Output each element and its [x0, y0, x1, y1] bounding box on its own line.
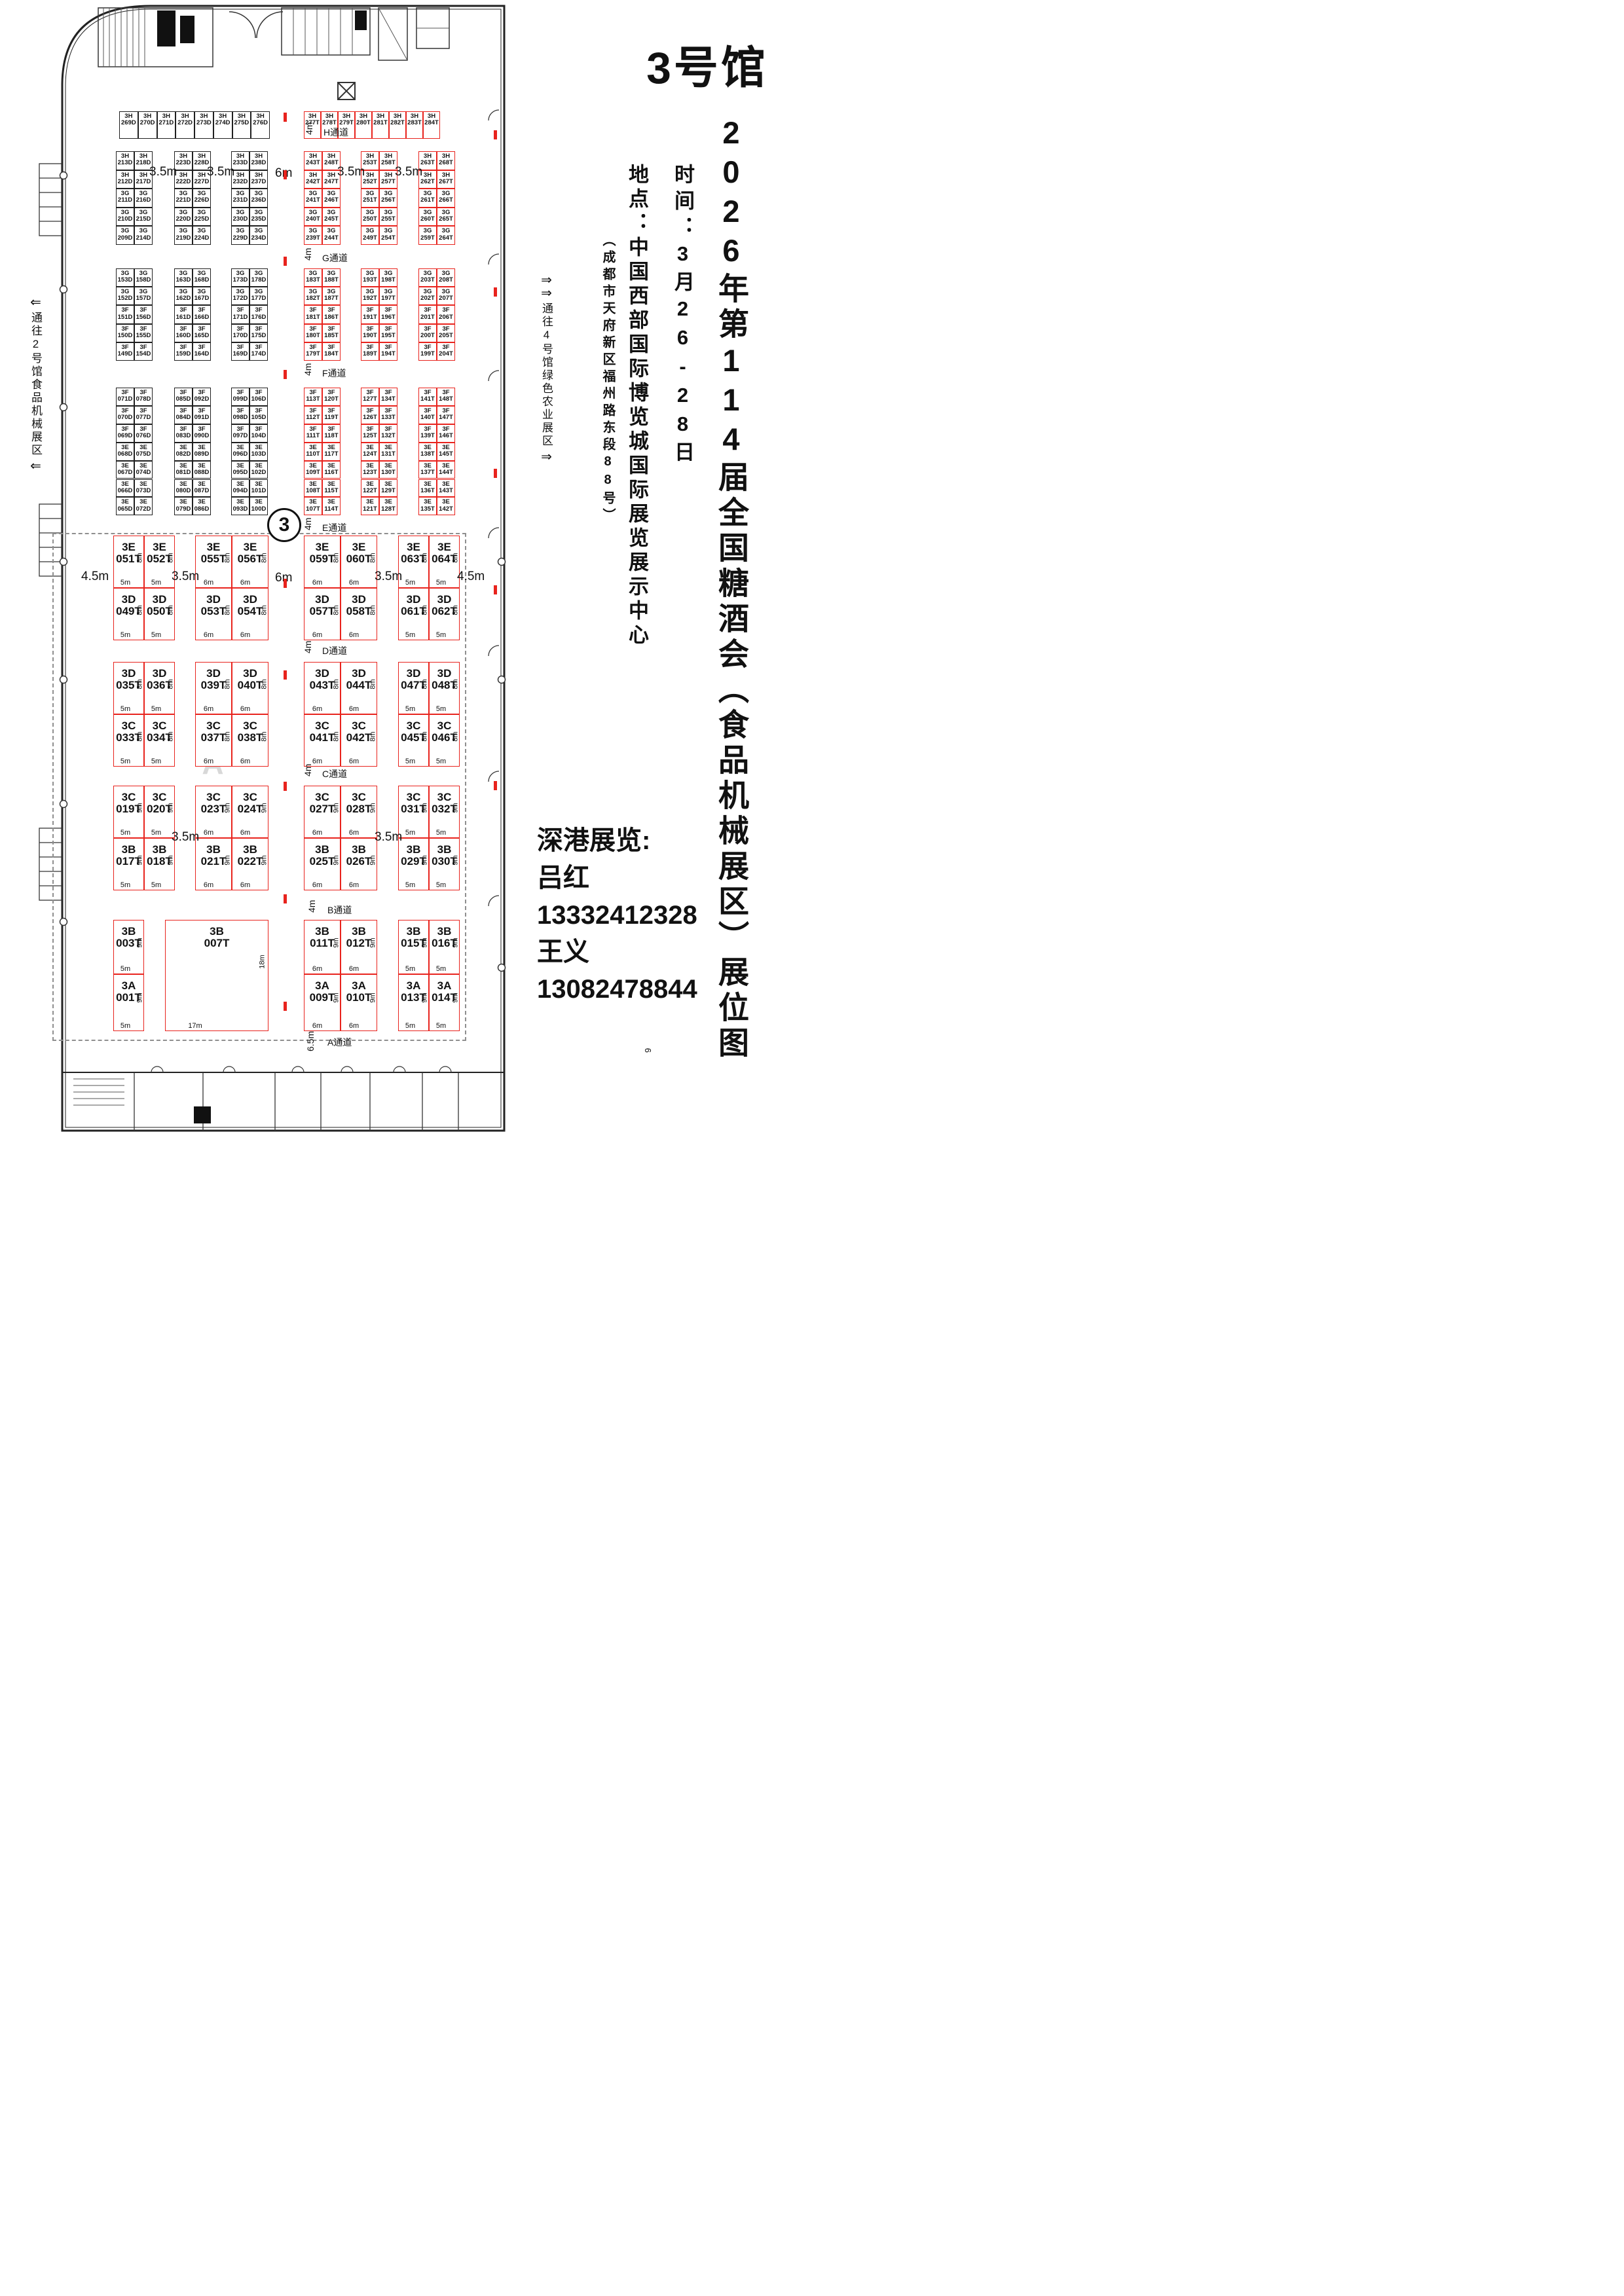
- booth-3F-184T: 3F184T: [322, 342, 341, 361]
- booth-width-label: 5m: [405, 1022, 415, 1030]
- dim-label: 4.5m: [457, 570, 485, 584]
- booth-3G-226D: 3G226D: [193, 189, 211, 208]
- dim-label: 3.5m: [375, 830, 402, 845]
- booth-3G-240T: 3G240T: [304, 208, 322, 227]
- booth-3F-139T: 3F139T: [418, 424, 437, 443]
- booth-3E-135T: 3E135T: [418, 497, 437, 515]
- booth-depth-label: 9m: [166, 803, 174, 812]
- booth-width-label: 5m: [436, 579, 446, 587]
- booth-3E-055T: 3E055T6m8m: [195, 536, 232, 588]
- booth-3E-067D: 3E067D: [116, 461, 134, 479]
- booth-width-label: 5m: [151, 631, 161, 639]
- booth-3E-128T: 3E128T: [379, 497, 397, 515]
- booth-3C-045T: 3C045T5m8m: [398, 714, 429, 767]
- booth-depth-label: 9m: [369, 803, 377, 812]
- booth-3G-241T: 3G241T: [304, 189, 322, 208]
- booth-width-label: 5m: [151, 757, 161, 765]
- booth-width-label: 6m: [204, 579, 213, 587]
- booth-depth-label: 8m: [332, 731, 340, 741]
- booth-depth-label: 8m: [420, 731, 428, 741]
- booth-3F-141T: 3F141T: [418, 388, 437, 406]
- booth-3F-190T: 3F190T: [361, 324, 379, 342]
- booth-3D-036T: 3D036T5m8m: [144, 662, 175, 714]
- booth-3G-265T: 3G265T: [437, 208, 455, 227]
- booth-width-label: 5m: [405, 829, 415, 837]
- contact-phone: 13332412328: [537, 897, 697, 934]
- booth-3B-025T: 3B025T6m9m: [304, 838, 341, 890]
- booth-width-label: 5m: [120, 829, 130, 837]
- booth-3H-283T: 3H283T: [406, 111, 423, 139]
- booth-3F-148T: 3F148T: [437, 388, 455, 406]
- booth-depth-label: 8m: [332, 679, 340, 689]
- aisle-label: B通道: [327, 903, 352, 917]
- booth-width-label: 5m: [120, 965, 130, 973]
- booth-3D-057T: 3D057T6m8m: [304, 588, 341, 640]
- booth-3H-271D: 3H271D: [157, 111, 176, 139]
- booth-3F-189T: 3F189T: [361, 342, 379, 361]
- booth-3F-154D: 3F154D: [134, 342, 153, 361]
- booth-depth-label: 8m: [369, 605, 377, 615]
- booth-3F-161D: 3F161D: [174, 305, 193, 323]
- booth-3F-201T: 3F201T: [418, 305, 437, 323]
- note-to-hall4: ⇒ ⇒ 通往4号馆绿色农业展区 ⇒: [538, 274, 555, 464]
- booth-3G-162D: 3G162D: [174, 287, 193, 305]
- booth-3F-151D: 3F151D: [116, 305, 134, 323]
- dim-label: 4m: [303, 518, 313, 530]
- booth-3E-093D: 3E093D: [231, 497, 249, 515]
- booth-3G-220D: 3G220D: [174, 208, 193, 227]
- booth-3F-171D: 3F171D: [231, 305, 249, 323]
- booth-3C-042T: 3C042T6m8m: [341, 714, 377, 767]
- booth-3B-021T: 3B021T6m9m: [195, 838, 232, 890]
- dim-label: 4m: [303, 248, 313, 261]
- booth-width-label: 5m: [405, 965, 415, 973]
- aisle-label: A通道: [327, 1036, 352, 1049]
- booth-3B-030T: 3B030T5m9m: [429, 838, 460, 890]
- booth-depth-label: 9m: [369, 938, 377, 947]
- booth-3G-211D: 3G211D: [116, 189, 134, 208]
- booth-3B-016T: 3B016T5m9m: [429, 920, 460, 974]
- booth-3F-205T: 3F205T: [437, 324, 455, 342]
- booth-depth-label: 8m: [223, 731, 231, 741]
- dim-label: 4m: [303, 363, 313, 376]
- booth-3D-035T: 3D035T5m8m: [113, 662, 144, 714]
- booth-3G-168D: 3G168D: [193, 268, 211, 287]
- corner-grid-label: 9: [643, 1048, 653, 1053]
- booth-width-label: 6m: [349, 705, 359, 713]
- booth-3D-053T: 3D053T6m8m: [195, 588, 232, 640]
- booth-width-label: 5m: [120, 757, 130, 765]
- booth-depth-label: 8m: [223, 679, 231, 689]
- booth-3B-017T: 3B017T5m9m: [113, 838, 144, 890]
- booth-depth-label: 8m: [420, 605, 428, 615]
- booth-3F-132T: 3F132T: [379, 424, 397, 443]
- booth-width-label: 5m: [151, 829, 161, 837]
- booth-3B-022T: 3B022T6m9m: [232, 838, 268, 890]
- booth-3G-250T: 3G250T: [361, 208, 379, 227]
- booth-3E-138T: 3E138T: [418, 443, 437, 461]
- booth-width-label: 6m: [240, 579, 250, 587]
- booth-3E-081D: 3E081D: [174, 461, 193, 479]
- booth-width-label: 5m: [151, 705, 161, 713]
- aisle-dash-mark: [284, 370, 287, 379]
- booth-depth-label: 8m: [451, 731, 459, 741]
- booth-depth-label: 8m: [332, 553, 340, 562]
- booth-3E-142T: 3E142T: [437, 497, 455, 515]
- booth-width-label: 6m: [312, 757, 322, 765]
- booth-3F-195T: 3F195T: [379, 324, 397, 342]
- booth-depth-label: 8m: [166, 679, 174, 689]
- booth-3F-174D: 3F174D: [249, 342, 268, 361]
- booth-3H-267T: 3H267T: [437, 170, 455, 189]
- booth-3D-044T: 3D044T6m8m: [341, 662, 377, 714]
- booth-width-label: 5m: [120, 579, 130, 587]
- booth-3G-178D: 3G178D: [249, 268, 268, 287]
- booth-3G-261T: 3G261T: [418, 189, 437, 208]
- booth-3F-133T: 3F133T: [379, 406, 397, 424]
- booth-3E-056T: 3E056T6m8m: [232, 536, 268, 588]
- booth-width-label: 17m: [188, 1022, 202, 1030]
- left-arrow-icon: ⇐: [30, 296, 41, 309]
- booth-3G-153D: 3G153D: [116, 268, 134, 287]
- booth-width-label: 6m: [312, 965, 322, 973]
- booth-3G-239T: 3G239T: [304, 226, 322, 245]
- booth-width-label: 6m: [240, 757, 250, 765]
- booth-3B-029T: 3B029T5m9m: [398, 838, 429, 890]
- booth-depth-label: 8m: [136, 679, 143, 689]
- booth-width-label: 6m: [349, 965, 359, 973]
- booth-width-label: 5m: [405, 881, 415, 889]
- booth-3H-281T: 3H281T: [372, 111, 389, 139]
- booth-3D-054T: 3D054T6m8m: [232, 588, 268, 640]
- booth-3B-003T: 3B003T5m9m: [113, 920, 144, 974]
- booth-depth-label: 9m: [451, 855, 459, 865]
- booth-3H-213D: 3H213D: [116, 151, 134, 170]
- booth-3F-196T: 3F196T: [379, 305, 397, 323]
- booth-depth-label: 9m: [136, 855, 143, 865]
- booth-3H-282T: 3H282T: [389, 111, 406, 139]
- booth-3C-020T: 3C020T5m9m: [144, 786, 175, 838]
- booth-3F-126T: 3F126T: [361, 406, 379, 424]
- booth-3F-150D: 3F150D: [116, 324, 134, 342]
- dim-label: 3.5m: [207, 165, 234, 179]
- booth-width-label: 5m: [436, 1022, 446, 1030]
- booth-width-label: 6m: [240, 631, 250, 639]
- booth-3D-039T: 3D039T6m8m: [195, 662, 232, 714]
- booth-3F-185T: 3F185T: [322, 324, 341, 342]
- booth-3A-001T: 3A001T5m9m: [113, 974, 144, 1031]
- booth-3E-108T: 3E108T: [304, 479, 322, 498]
- booth-3G-235D: 3G235D: [249, 208, 268, 227]
- booth-3C-046T: 3C046T5m8m: [429, 714, 460, 767]
- booth-width-label: 5m: [120, 881, 130, 889]
- right-arrow-icon: ⇒: [541, 287, 552, 300]
- booth-depth-label: 9m: [451, 993, 459, 1002]
- booth-3B-018T: 3B018T5m9m: [144, 838, 175, 890]
- booth-width-label: 5m: [436, 631, 446, 639]
- booth-3D-048T: 3D048T5m8m: [429, 662, 460, 714]
- booth-3E-102D: 3E102D: [249, 461, 268, 479]
- booth-3F-181T: 3F181T: [304, 305, 322, 323]
- booth-3G-246T: 3G246T: [322, 189, 341, 208]
- booth-width-label: 6m: [204, 829, 213, 837]
- booth-3E-052T: 3E052T5m8m: [144, 536, 175, 588]
- booth-3E-072D: 3E072D: [134, 497, 153, 515]
- booth-3D-047T: 3D047T5m8m: [398, 662, 429, 714]
- booth-3C-032T: 3C032T5m9m: [429, 786, 460, 838]
- booth-3G-203T: 3G203T: [418, 268, 437, 287]
- booth-3F-077D: 3F077D: [134, 406, 153, 424]
- booth-depth-label: 8m: [420, 679, 428, 689]
- aisle-dash-mark: [284, 782, 287, 791]
- booth-depth-label: 9m: [451, 938, 459, 947]
- booth-3F-169D: 3F169D: [231, 342, 249, 361]
- booth-3C-038T: 3C038T6m8m: [232, 714, 268, 767]
- booth-3E-136T: 3E136T: [418, 479, 437, 498]
- booth-depth-label: 8m: [223, 553, 231, 562]
- booth-3H-243T: 3H243T: [304, 151, 322, 170]
- booth-3F-199T: 3F199T: [418, 342, 437, 361]
- booth-depth-label: 8m: [136, 553, 143, 562]
- booth-width-label: 5m: [436, 829, 446, 837]
- booth-3H-238D: 3H238D: [249, 151, 268, 170]
- aisle-dash-mark: [284, 670, 287, 680]
- booth-3E-064T: 3E064T5m8m: [429, 536, 460, 588]
- aisle-dash-mark: [284, 113, 287, 122]
- booth-3F-170D: 3F170D: [231, 324, 249, 342]
- booth-depth-label: 8m: [260, 605, 268, 615]
- booth-depth-label: 8m: [166, 731, 174, 741]
- booth-3F-071D: 3F071D: [116, 388, 134, 406]
- aisle-label: H通道: [323, 126, 348, 139]
- booth-3F-085D: 3F085D: [174, 388, 193, 406]
- contact-phone: 13082478844: [537, 971, 697, 1008]
- booth-3G-245T: 3G245T: [322, 208, 341, 227]
- right-arrow-icon: ⇒: [541, 274, 552, 287]
- right-arrow-icon: ⇒: [541, 450, 552, 464]
- booth-depth-label: 9m: [136, 938, 143, 947]
- booth-depth-label: 9m: [420, 855, 428, 865]
- booth-3F-106D: 3F106D: [249, 388, 268, 406]
- booth-3F-112T: 3F112T: [304, 406, 322, 424]
- aisle-dash-mark: [284, 170, 287, 179]
- booth-depth-label: 9m: [451, 803, 459, 812]
- booth-3F-070D: 3F070D: [116, 406, 134, 424]
- booth-depth-label: 9m: [223, 855, 231, 865]
- booth-depth-label: 8m: [260, 679, 268, 689]
- booth-3D-049T: 3D049T5m8m: [113, 588, 144, 640]
- booth-width-label: 6m: [312, 579, 322, 587]
- booth-3E-107T: 3E107T: [304, 497, 322, 515]
- booth-3E-131T: 3E131T: [379, 443, 397, 461]
- left-arrow-icon: ⇐: [30, 460, 41, 473]
- booth-3E-068D: 3E068D: [116, 443, 134, 461]
- booth-3G-224D: 3G224D: [193, 226, 211, 245]
- event-time: 时间：3月26-28日: [668, 164, 697, 467]
- aisle-dash-mark: [494, 585, 497, 594]
- booth-3H-270D: 3H270D: [138, 111, 157, 139]
- booth-3E-086D: 3E086D: [193, 497, 211, 515]
- booth-3B-015T: 3B015T5m9m: [398, 920, 429, 974]
- booth-3F-090D: 3F090D: [193, 424, 211, 443]
- booth-3G-234D: 3G234D: [249, 226, 268, 245]
- dim-label: 3.5m: [172, 570, 199, 584]
- booth-depth-label: 8m: [451, 605, 459, 615]
- booth-3F-099D: 3F099D: [231, 388, 249, 406]
- booth-depth-label: 9m: [166, 855, 174, 865]
- booth-3G-167D: 3G167D: [193, 287, 211, 305]
- booth-3G-266T: 3G266T: [437, 189, 455, 208]
- dim-label: 6.5m: [305, 1031, 316, 1051]
- booth-3A-010T: 3A010T6m9m: [341, 974, 377, 1031]
- booth-3G-157D: 3G157D: [134, 287, 153, 305]
- booth-3G-198T: 3G198T: [379, 268, 397, 287]
- booth-width-label: 5m: [405, 631, 415, 639]
- booth-3G-249T: 3G249T: [361, 226, 379, 245]
- note-to-hall2: ⇐ 通往2号馆食品机械展区 ⇐: [28, 296, 44, 473]
- booth-width-label: 6m: [349, 829, 359, 837]
- booth-3G-152D: 3G152D: [116, 287, 134, 305]
- dim-label: 4m: [304, 122, 314, 135]
- booth-depth-label: 8m: [136, 605, 143, 615]
- booth-depth-label: 9m: [420, 803, 428, 812]
- booth-depth-label: 8m: [223, 605, 231, 615]
- booth-depth-label: 9m: [420, 993, 428, 1002]
- booth-3H-275D: 3H275D: [232, 111, 251, 139]
- aisle-label: F通道: [322, 367, 346, 380]
- booth-3F-160D: 3F160D: [174, 324, 193, 342]
- booth-3G-177D: 3G177D: [249, 287, 268, 305]
- booth-3E-079D: 3E079D: [174, 497, 193, 515]
- booth-width-label: 6m: [204, 757, 213, 765]
- booth-depth-label: 8m: [369, 679, 377, 689]
- booth-3C-019T: 3C019T5m9m: [113, 786, 144, 838]
- booth-3G-208T: 3G208T: [437, 268, 455, 287]
- booth-3F-111T: 3F111T: [304, 424, 322, 443]
- aisle-dash-mark: [284, 257, 287, 266]
- booth-width-label: 5m: [436, 965, 446, 973]
- booth-3F-069D: 3F069D: [116, 424, 134, 443]
- booth-width-label: 5m: [405, 579, 415, 587]
- booth-3G-210D: 3G210D: [116, 208, 134, 227]
- booth-depth-label: 9m: [260, 855, 268, 865]
- booth-3E-116T: 3E116T: [322, 461, 341, 479]
- booth-3F-180T: 3F180T: [304, 324, 322, 342]
- booth-3D-043T: 3D043T6m8m: [304, 662, 341, 714]
- aisle-label: D通道: [322, 644, 347, 657]
- booth-3E-145T: 3E145T: [437, 443, 455, 461]
- booth-3G-254T: 3G254T: [379, 226, 397, 245]
- booth-3A-009T: 3A009T6m9m: [304, 974, 341, 1031]
- contact-block: 深港展览: 吕红 13332412328 王义 13082478844: [537, 822, 697, 1008]
- booth-3F-134T: 3F134T: [379, 388, 397, 406]
- booth-3E-130T: 3E130T: [379, 461, 397, 479]
- booth-3C-034T: 3C034T5m8m: [144, 714, 175, 767]
- booth-3C-037T: 3C037T6m8m: [195, 714, 232, 767]
- booth-width-label: 5m: [120, 1022, 130, 1030]
- booth-3G-255T: 3G255T: [379, 208, 397, 227]
- booth-depth-label: 9m: [136, 993, 143, 1002]
- booth-3G-183T: 3G183T: [304, 268, 322, 287]
- booth-depth-label: 8m: [166, 553, 174, 562]
- booth-3E-096D: 3E096D: [231, 443, 249, 461]
- booth-width-label: 6m: [349, 579, 359, 587]
- booth-3C-033T: 3C033T5m8m: [113, 714, 144, 767]
- booth-width-label: 6m: [312, 705, 322, 713]
- booth-3H-274D: 3H274D: [213, 111, 232, 139]
- dim-label: 3.5m: [149, 165, 177, 179]
- booth-width-label: 5m: [436, 757, 446, 765]
- booth-3F-118T: 3F118T: [322, 424, 341, 443]
- booth-width-label: 5m: [151, 579, 161, 587]
- booth-depth-label: 8m: [369, 553, 377, 562]
- booth-depth-label: 9m: [332, 803, 340, 812]
- booth-width-label: 6m: [312, 829, 322, 837]
- booth-3E-144T: 3E144T: [437, 461, 455, 479]
- booth-3F-127T: 3F127T: [361, 388, 379, 406]
- booth-3E-094D: 3E094D: [231, 479, 249, 498]
- booth-3F-120T: 3F120T: [322, 388, 341, 406]
- booth-3E-137T: 3E137T: [418, 461, 437, 479]
- booth-width-label: 6m: [204, 705, 213, 713]
- booth-3G-158D: 3G158D: [134, 268, 153, 287]
- aisle-label: C通道: [322, 767, 347, 780]
- booth-3F-194T: 3F194T: [379, 342, 397, 361]
- booth-3F-113T: 3F113T: [304, 388, 322, 406]
- booth-depth-label: 18m: [258, 955, 266, 968]
- booth-3D-058T: 3D058T6m8m: [341, 588, 377, 640]
- booth-3F-084D: 3F084D: [174, 406, 193, 424]
- booth-3E-124T: 3E124T: [361, 443, 379, 461]
- booth-depth-label: 9m: [369, 993, 377, 1002]
- booth-3H-273D: 3H273D: [194, 111, 213, 139]
- dim-label: 4.5m: [81, 570, 109, 584]
- booth-3F-204T: 3F204T: [437, 342, 455, 361]
- booth-3F-176D: 3F176D: [249, 305, 268, 323]
- booth-3E-088D: 3E088D: [193, 461, 211, 479]
- booth-3H-237D: 3H237D: [249, 170, 268, 189]
- booth-3G-225D: 3G225D: [193, 208, 211, 227]
- booth-depth-label: 9m: [332, 938, 340, 947]
- booth-depth-label: 9m: [260, 803, 268, 812]
- booth-width-label: 6m: [312, 881, 322, 889]
- booth-3C-041T: 3C041T6m8m: [304, 714, 341, 767]
- booth-width-label: 5m: [405, 705, 415, 713]
- dim-label: 3.5m: [395, 165, 422, 179]
- booth-3F-147T: 3F147T: [437, 406, 455, 424]
- booth-3E-143T: 3E143T: [437, 479, 455, 498]
- booth-3G-187T: 3G187T: [322, 287, 341, 305]
- aisle-label: G通道: [322, 251, 348, 264]
- aisle-dash-mark: [494, 469, 497, 478]
- booth-3F-098D: 3F098D: [231, 406, 249, 424]
- booth-3C-024T: 3C024T6m9m: [232, 786, 268, 838]
- booth-depth-label: 8m: [260, 553, 268, 562]
- booth-3G-219D: 3G219D: [174, 226, 193, 245]
- booth-width-label: 6m: [240, 705, 250, 713]
- booth-3G-251T: 3G251T: [361, 189, 379, 208]
- booth-3E-121T: 3E121T: [361, 497, 379, 515]
- booth-3A-014T: 3A014T5m9m: [429, 974, 460, 1031]
- booth-3G-202T: 3G202T: [418, 287, 437, 305]
- booth-3E-117T: 3E117T: [322, 443, 341, 461]
- booth-3E-110T: 3E110T: [304, 443, 322, 461]
- booth-3F-149D: 3F149D: [116, 342, 134, 361]
- booth-depth-label: 9m: [332, 993, 340, 1002]
- booth-3F-159D: 3F159D: [174, 342, 193, 361]
- booth-3F-092D: 3F092D: [193, 388, 211, 406]
- booth-3F-175D: 3F175D: [249, 324, 268, 342]
